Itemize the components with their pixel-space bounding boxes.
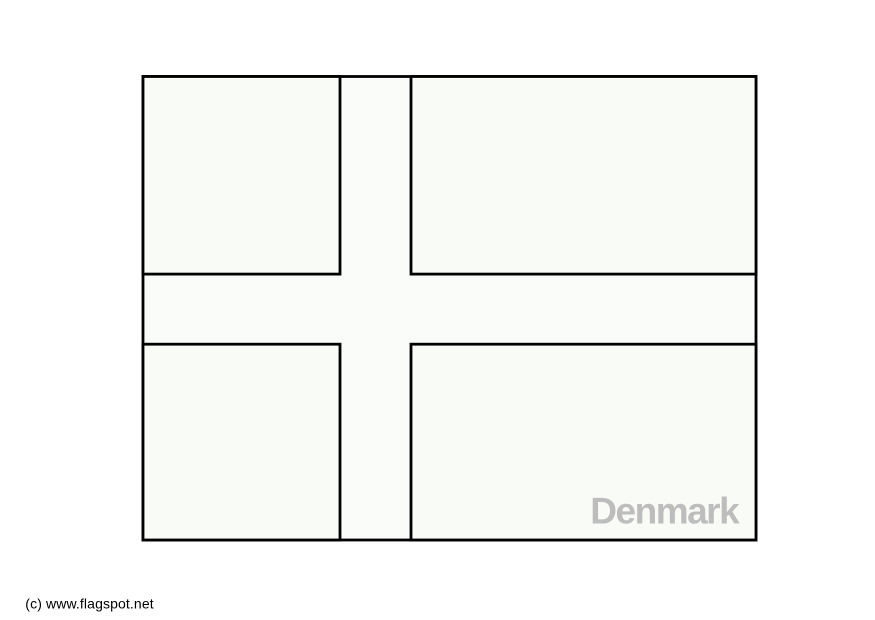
svg-text:(c) www.flagspot.net: (c) www.flagspot.net — [25, 596, 153, 612]
svg-text:Denmark: Denmark — [590, 491, 740, 532]
